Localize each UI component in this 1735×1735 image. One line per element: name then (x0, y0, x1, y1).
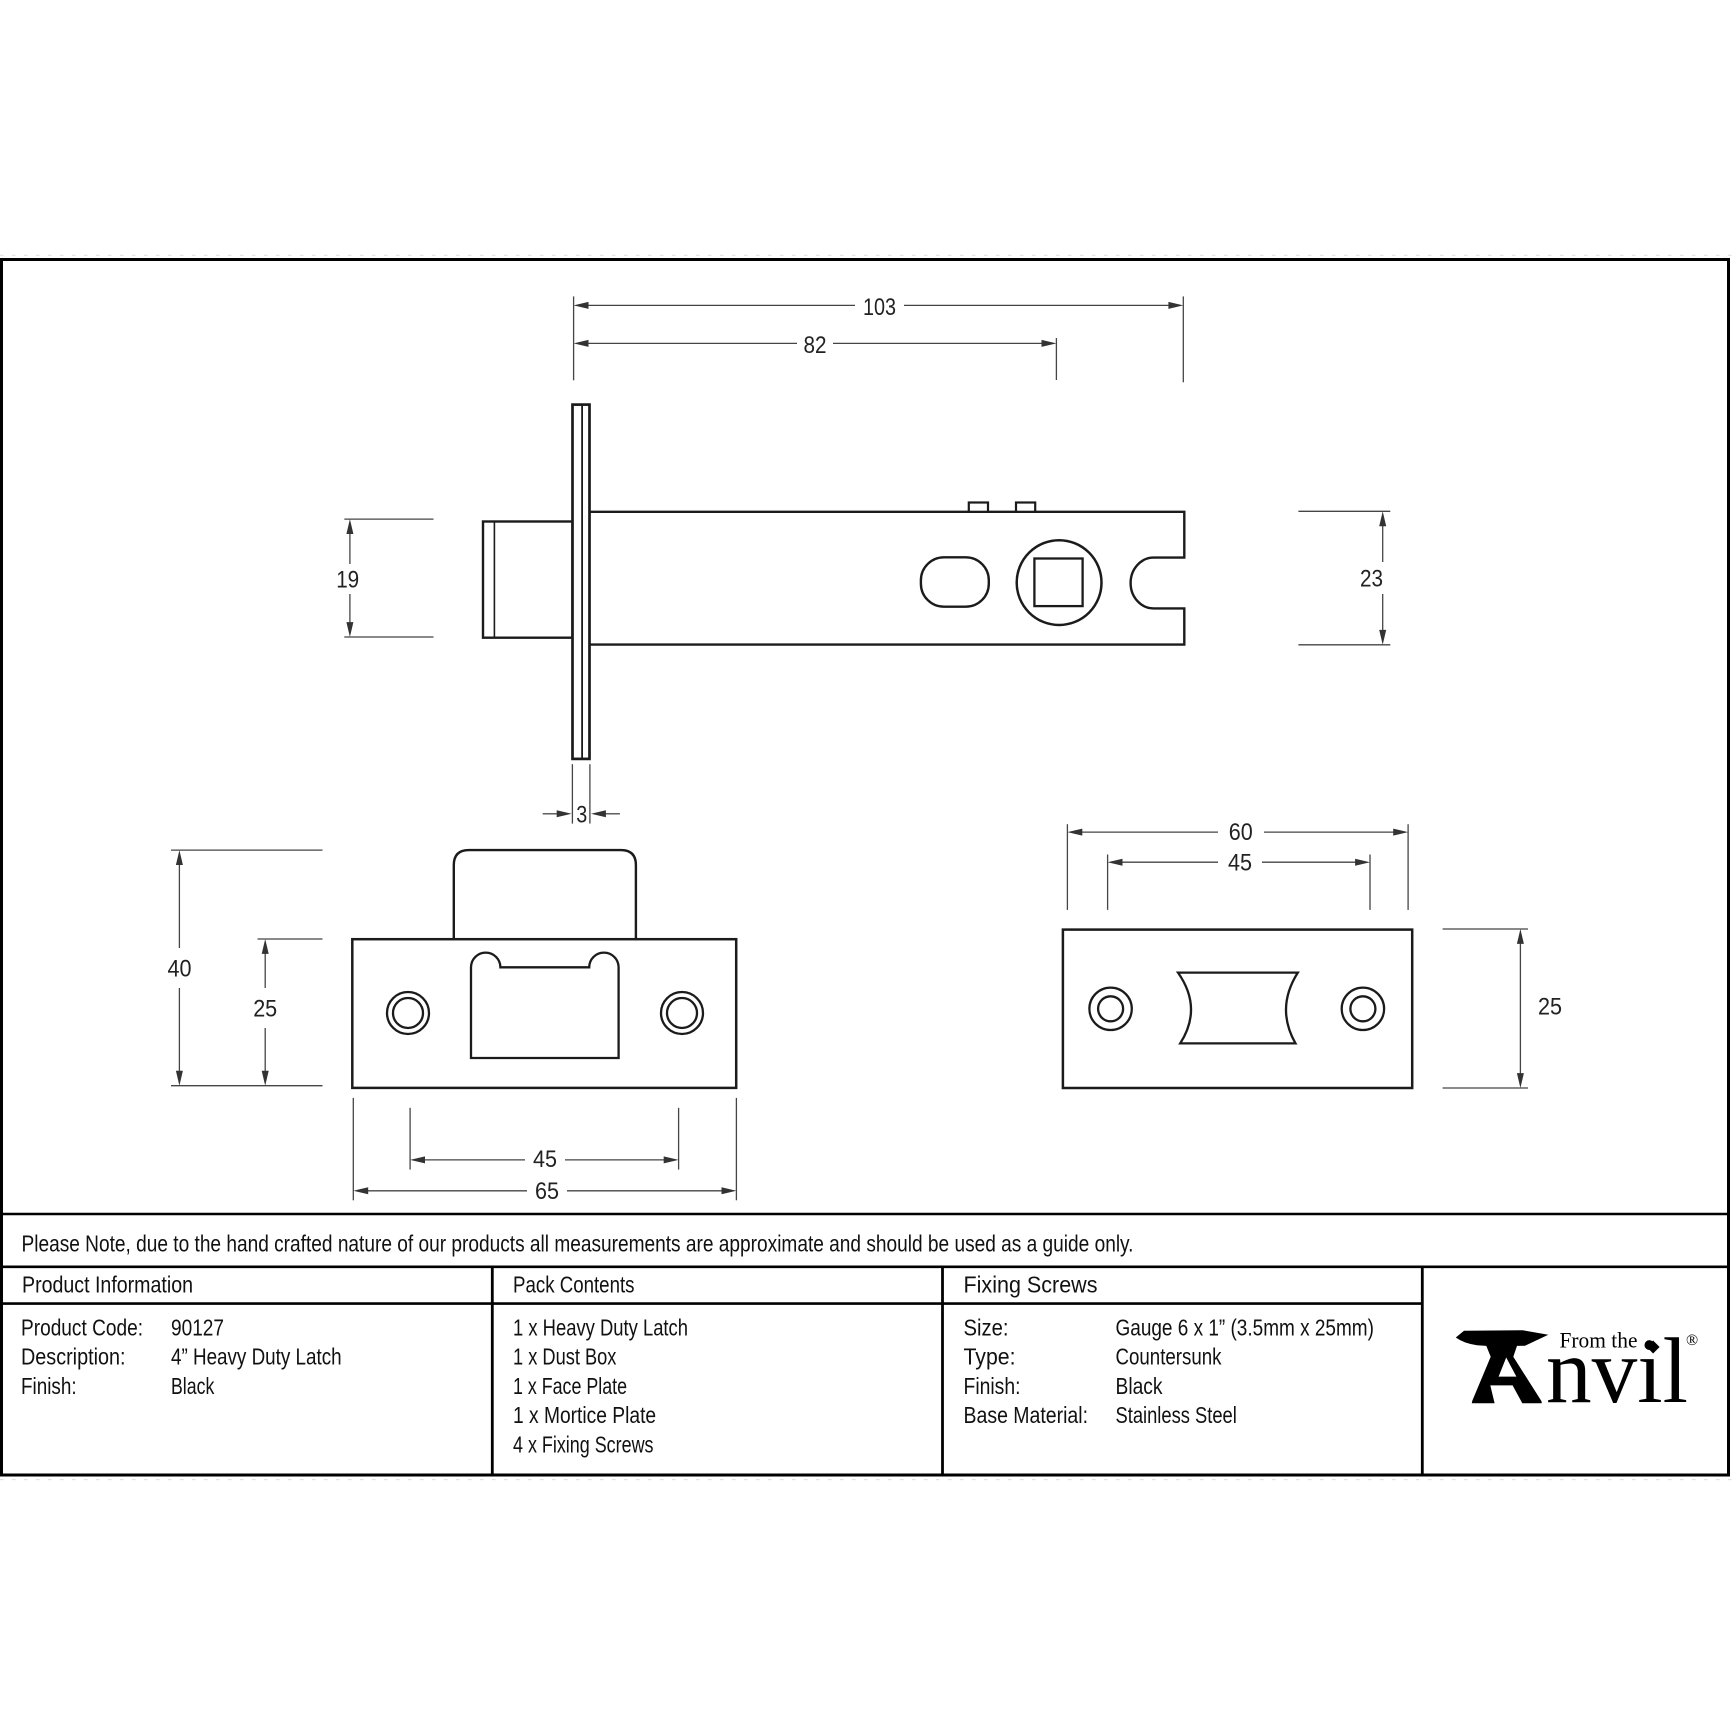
svg-text:Please Note, due to the hand c: Please Note, due to the hand crafted nat… (22, 1231, 1134, 1257)
svg-text:23: 23 (1360, 566, 1383, 593)
svg-text:Fixing Screws: Fixing Screws (964, 1272, 1098, 1298)
svg-text:1 x Dust Box: 1 x Dust Box (513, 1344, 617, 1370)
svg-text:103: 103 (863, 294, 896, 321)
svg-text:Gauge 6 x 1” (3.5mm x 25mm): Gauge 6 x 1” (3.5mm x 25mm) (1116, 1315, 1374, 1341)
svg-text:65: 65 (535, 1178, 559, 1205)
svg-text:45: 45 (1228, 850, 1252, 877)
svg-text:Product Code:: Product Code: (21, 1315, 143, 1341)
svg-text:82: 82 (804, 332, 827, 359)
svg-text:Base Material:: Base Material: (964, 1402, 1089, 1428)
svg-text:25: 25 (1538, 994, 1562, 1021)
svg-text:Description:: Description: (21, 1344, 126, 1370)
svg-text:Countersunk: Countersunk (1116, 1344, 1222, 1370)
svg-text:3: 3 (576, 802, 587, 829)
svg-text:Pack Contents: Pack Contents (513, 1272, 635, 1298)
svg-text:Black: Black (1116, 1373, 1163, 1399)
svg-text:90127: 90127 (171, 1315, 224, 1341)
svg-text:Stainless Steel: Stainless Steel (1116, 1402, 1237, 1428)
svg-text:1 x Heavy Duty Latch: 1 x Heavy Duty Latch (513, 1315, 688, 1341)
svg-text:60: 60 (1229, 819, 1253, 846)
svg-text:Product Information: Product Information (22, 1272, 193, 1298)
svg-text:1 x Mortice Plate: 1 x Mortice Plate (513, 1402, 656, 1428)
svg-text:4” Heavy Duty Latch: 4” Heavy Duty Latch (171, 1344, 342, 1370)
svg-text:®: ® (1686, 1332, 1698, 1349)
svg-text:Size:: Size: (964, 1315, 1009, 1341)
svg-text:4 x Fixing Screws: 4 x Fixing Screws (513, 1431, 654, 1457)
svg-text:Black: Black (171, 1373, 214, 1399)
svg-text:1 x Face Plate: 1 x Face Plate (513, 1373, 627, 1399)
svg-text:45: 45 (533, 1146, 557, 1173)
svg-text:Type:: Type: (964, 1344, 1016, 1370)
svg-text:nvil: nvil (1546, 1320, 1688, 1423)
svg-text:25: 25 (253, 996, 277, 1023)
svg-text:Finish:: Finish: (21, 1373, 77, 1399)
svg-text:19: 19 (336, 567, 359, 594)
svg-text:Finish:: Finish: (964, 1373, 1021, 1399)
svg-text:40: 40 (168, 956, 192, 983)
